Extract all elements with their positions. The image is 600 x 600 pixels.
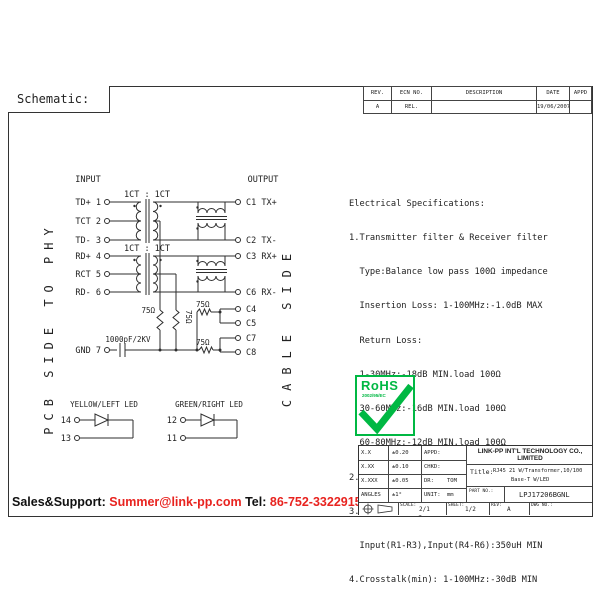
spec-line: Input(R1-R3),Input(R4-R6):350uH MIN bbox=[349, 541, 592, 552]
choke-rx-bottom-coil bbox=[198, 276, 225, 281]
part-no-value: LPJ17206BGNL bbox=[519, 492, 570, 498]
spec-line: 4.Crosstalk(min): 1-100MHz:-30dB MIN bbox=[349, 575, 592, 586]
diode-green-led bbox=[201, 414, 214, 426]
spec-line: 1.Transmitter filter & Receiver filter bbox=[349, 233, 592, 244]
scale-label: SCALE: bbox=[400, 503, 416, 508]
chkd-label: CHKD: bbox=[424, 464, 441, 470]
spec-line: Return Loss: bbox=[349, 336, 592, 347]
rohs-checkmark-icon bbox=[357, 377, 413, 434]
choke-tx-core bbox=[196, 217, 227, 220]
rohs-logo: RoHS 2002/95/EC bbox=[355, 375, 415, 436]
scale-value: 2/1 bbox=[419, 507, 430, 513]
angles-value: ±1° bbox=[392, 492, 402, 498]
choke-rx-core bbox=[196, 270, 227, 273]
resistor-label-1: 75Ω bbox=[141, 306, 155, 315]
spec-line: Electrical Specifications: bbox=[349, 199, 592, 210]
support-phone: 86-752-3322915 bbox=[270, 495, 362, 509]
choke-rx-top-coil bbox=[198, 262, 225, 267]
output-pin-label-c2: C2 TX- bbox=[246, 236, 277, 246]
transformer-tx-core bbox=[146, 199, 149, 243]
dr-label: DR: bbox=[424, 478, 434, 484]
pcb-side-label: PCB SIDE TO PHY bbox=[42, 221, 56, 434]
input-pin-label-6: RD- 6 bbox=[75, 288, 101, 298]
part-no-label: PART NO.: bbox=[469, 489, 493, 494]
product-title-line2: Base-T W/LED bbox=[511, 477, 549, 483]
input-pin-label-3: TD- 3 bbox=[75, 236, 101, 246]
choke-tx-top-coil bbox=[198, 209, 225, 214]
projection-symbol-icon bbox=[361, 503, 397, 515]
capacitor-label: 1000pF/2KV bbox=[105, 335, 151, 344]
angles-label: ANGLES bbox=[361, 492, 381, 498]
tolerance-value-3: ±0.05 bbox=[392, 478, 409, 484]
led-pin-label-12: 12 bbox=[167, 416, 177, 426]
output-pin-label-c1: C1 TX+ bbox=[246, 198, 277, 208]
input-pin-label-7: GND 7 bbox=[75, 346, 101, 356]
output-section-label: OUTPUT bbox=[248, 175, 279, 185]
input-pin-label-1: TD+ 1 bbox=[75, 198, 101, 208]
appd-label: APPD: bbox=[424, 450, 441, 456]
led-pin-label-14: 14 bbox=[61, 416, 71, 426]
capacitor-1000pf bbox=[120, 343, 125, 357]
input-pin-label-2: TCT 2 bbox=[75, 217, 101, 227]
output-pin-label-c6: C6 RX- bbox=[246, 288, 277, 298]
output-pin-label-c8: C8 bbox=[246, 348, 256, 358]
resistor-75ohm-4 bbox=[199, 347, 213, 353]
tolerance-label-3: X.XXX bbox=[361, 478, 378, 484]
rev-value: A bbox=[507, 507, 511, 513]
product-title-line1: RJ45 21 W/Transformer,10/100 bbox=[493, 468, 582, 474]
dwg-no-label: DWG NO.: bbox=[531, 503, 553, 508]
input-pin-label-5: RCT 5 bbox=[75, 270, 101, 280]
yellow-led-title: YELLOW/LEFT LED bbox=[70, 400, 138, 409]
resistor-75ohm-1 bbox=[157, 310, 163, 330]
output-pin-label-c4: C4 bbox=[246, 305, 256, 315]
tolerance-value-2: ±0.10 bbox=[392, 464, 409, 470]
drawing-sheet: Schematic: REV. ECN NO. DESCRIPTION DATE… bbox=[0, 0, 600, 600]
resistor-label-4: 75Ω bbox=[196, 338, 210, 347]
unit-value: mm bbox=[447, 492, 454, 498]
cable-side-label: CABLE SIDE bbox=[280, 245, 294, 407]
input-section-label: INPUT bbox=[75, 175, 101, 185]
output-pin-label-c5: C5 bbox=[246, 319, 256, 329]
sheet-label: SHEET: bbox=[448, 503, 464, 508]
tolerance-label-1: X.X bbox=[361, 450, 371, 456]
turns-ratio-tx-label: 1CT : 1CT bbox=[124, 190, 170, 200]
resistor-75ohm-3 bbox=[197, 309, 211, 315]
tolerance-value-1: ±0.20 bbox=[392, 450, 409, 456]
sheet-value: 1/2 bbox=[465, 507, 476, 513]
sales-support-line: Sales&Support: Summer@link-pp.com Tel: 8… bbox=[12, 495, 362, 509]
resistor-75ohm-2 bbox=[173, 310, 179, 330]
dr-name: TOM bbox=[447, 478, 457, 484]
company-name: LINK-PP INT'L TECHNOLOGY CO., LIMITED bbox=[467, 446, 593, 464]
unit-label: UNIT: bbox=[424, 492, 441, 498]
input-pin-label-4: RD+ 4 bbox=[75, 252, 101, 262]
green-led-title: GREEN/RIGHT LED bbox=[175, 400, 243, 409]
transformer-rx-core bbox=[146, 253, 149, 295]
tel-label: Tel: bbox=[245, 495, 266, 509]
tolerance-label-2: X.XX bbox=[361, 464, 374, 470]
turns-ratio-rx-label: 1CT : 1CT bbox=[124, 244, 170, 254]
title-block: X.X ±0.20 APPD: X.XX ±0.10 CHKD: X.XXX ±… bbox=[358, 445, 592, 515]
support-email: Summer@link-pp.com bbox=[109, 495, 241, 509]
resistor-label-3: 75Ω bbox=[196, 300, 210, 309]
led-pin-label-13: 13 bbox=[61, 434, 71, 444]
output-pin-label-c7: C7 bbox=[246, 334, 256, 344]
resistor-label-2: 75Ω bbox=[184, 310, 193, 324]
diode-yellow-led bbox=[95, 414, 108, 426]
led-pin-label-11: 11 bbox=[167, 434, 177, 444]
spec-line: Type:Balance low pass 100Ω impedance bbox=[349, 267, 592, 278]
title-label: Title: bbox=[470, 469, 493, 475]
choke-tx-bottom-coil bbox=[198, 223, 225, 228]
output-pin-label-c3: C3 RX+ bbox=[246, 252, 277, 262]
spec-line: Insertion Loss: 1-100MHz:-1.0dB MAX bbox=[349, 301, 592, 312]
support-label: Sales&Support: bbox=[12, 495, 106, 509]
rev-label: REV: bbox=[491, 503, 502, 508]
